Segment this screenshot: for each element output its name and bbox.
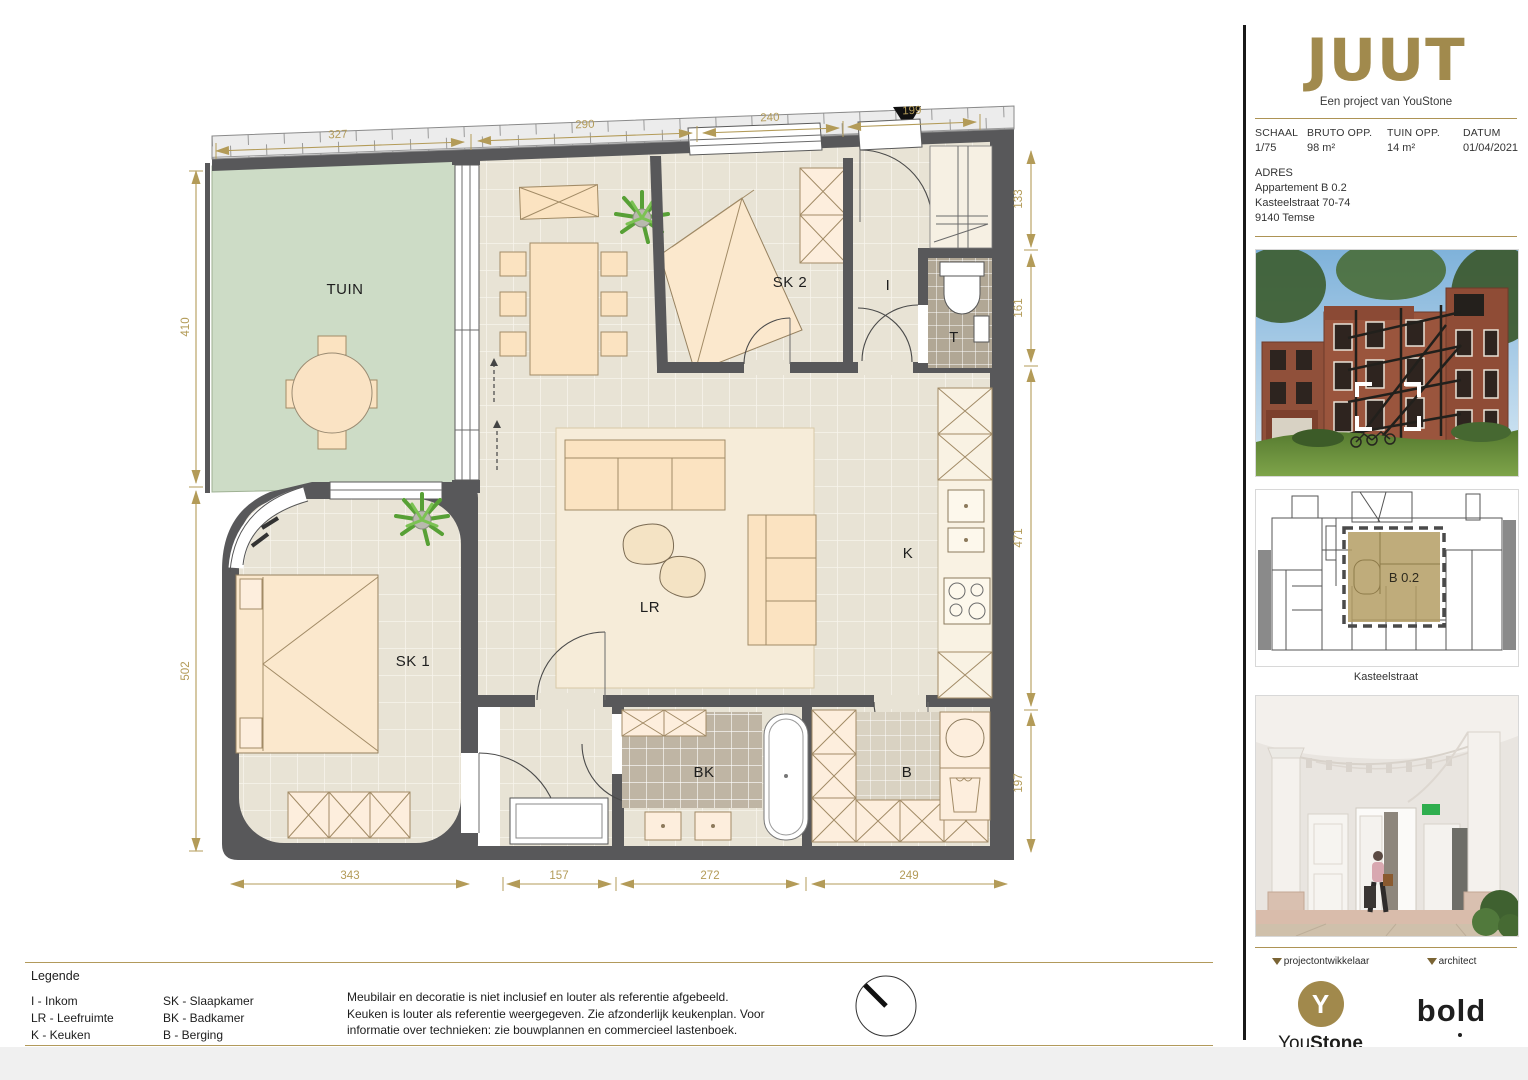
siteplan-unit-label: B 0.2: [1389, 570, 1419, 585]
siteplan-street-label: Kasteelstraat: [1255, 671, 1517, 683]
gold-divider: [1255, 118, 1517, 119]
juut-logo: JUUT: [1255, 30, 1517, 90]
dim-top-199: 199: [902, 105, 922, 118]
room-label-leefruimte: LR: [640, 599, 660, 616]
room-label-berging: B: [902, 764, 913, 781]
sidebar: JUUT Een project van YouStone SCHAAL1/75…: [1243, 0, 1528, 1080]
triangle-icon: [1272, 958, 1282, 965]
north-compass-icon: [853, 973, 919, 1044]
room-label-inkom: I: [886, 277, 891, 294]
info-row: SCHAAL1/75 BRUTO OPP.98 m² TUIN OPP.14 m…: [1255, 127, 1517, 154]
bold-logo: bold: [1417, 993, 1486, 1029]
adres-line3: 9140 Temse: [1255, 211, 1517, 226]
building-photo: [1255, 249, 1519, 477]
schaal-label: SCHAAL: [1255, 127, 1307, 139]
bottom-strip: [0, 1047, 1528, 1080]
room-label-keuken: K: [903, 545, 914, 562]
bold-wordmark: bold: [1417, 993, 1486, 1028]
legend-item: BK - Badkamer: [163, 1010, 254, 1027]
address-block: ADRES Appartement B 0.2 Kasteelstraat 70…: [1255, 166, 1517, 226]
dim-top-240: 240: [760, 112, 780, 125]
room-label-badkamer: BK: [693, 764, 714, 781]
dim-bottom-249: 249: [899, 870, 918, 882]
legend: Legende I - Inkom LR - Leefruimte K - Ke…: [25, 962, 1213, 1046]
triangle-icon: [1427, 958, 1437, 965]
dim-right-471: 471: [1013, 528, 1025, 547]
disclaimer-text: Meubilair en decoratie is niet inclusief…: [347, 989, 767, 1039]
legend-title: Legende: [31, 969, 80, 983]
dim-right-197: 197: [1013, 773, 1025, 792]
datum-value: 01/04/2021: [1463, 142, 1517, 154]
legend-item: LR - Leefruimte: [31, 1010, 115, 1027]
project-tagline: Een project van YouStone: [1255, 96, 1517, 108]
dim-right-161: 161: [1013, 298, 1025, 317]
legend-item: I - Inkom: [31, 993, 115, 1010]
room-label-tuin: TUIN: [327, 281, 364, 298]
architect-label: architect: [1439, 956, 1477, 967]
floorplan: TUIN SK 2 I T K LR SK 1 BK B 327 290 240…: [0, 0, 1240, 960]
dim-top-327: 327: [328, 129, 348, 142]
unit-highlight: B 0.2: [1344, 528, 1444, 626]
dim-left-502: 502: [180, 661, 192, 680]
tuin-label: TUIN OPP.: [1387, 127, 1463, 139]
datum-label: DATUM: [1463, 127, 1517, 139]
floorplan-drawing: TUIN SK 2 I T K LR SK 1 BK B 327 290 240…: [0, 0, 1240, 960]
gold-divider: [1255, 236, 1517, 237]
room-label-sk1: SK 1: [396, 653, 431, 670]
legend-item: B - Berging: [163, 1027, 254, 1044]
hall-bottom-window: [510, 798, 608, 844]
legend-item: SK - Slaapkamer: [163, 993, 254, 1010]
adres-line2: Kasteelstraat 70-74: [1255, 196, 1517, 211]
tuin-value: 14 m²: [1387, 142, 1463, 154]
youstone-logo-icon: Y: [1298, 981, 1344, 1027]
kitchen-counter: [938, 388, 992, 698]
interior-photo: [1255, 695, 1519, 937]
dim-right-133: 133: [1013, 189, 1025, 208]
legend-column-2: SK - Slaapkamer BK - Badkamer B - Bergin…: [163, 993, 254, 1044]
legend-item: K - Keuken: [31, 1027, 115, 1044]
bold-logo-dot: [1458, 1033, 1462, 1037]
sidebar-divider: [1243, 25, 1246, 1040]
dim-left-410: 410: [180, 317, 192, 336]
dim-bottom-343: 343: [340, 870, 359, 882]
bruto-label: BRUTO OPP.: [1307, 127, 1387, 139]
developer-label: projectontwikkelaar: [1284, 956, 1370, 967]
bruto-value: 98 m²: [1307, 142, 1387, 154]
siteplan-image: B 0.2: [1255, 489, 1519, 667]
adres-line1: Appartement B 0.2: [1255, 181, 1517, 196]
room-label-sk2: SK 2: [773, 274, 808, 291]
dim-bottom-157: 157: [549, 870, 568, 882]
schaal-value: 1/75: [1255, 142, 1307, 154]
dim-top-290: 290: [575, 119, 595, 132]
room-label-toilet: T: [949, 329, 959, 346]
adres-label: ADRES: [1255, 166, 1517, 181]
dim-bottom-272: 272: [700, 870, 719, 882]
bathroom: [622, 710, 808, 840]
